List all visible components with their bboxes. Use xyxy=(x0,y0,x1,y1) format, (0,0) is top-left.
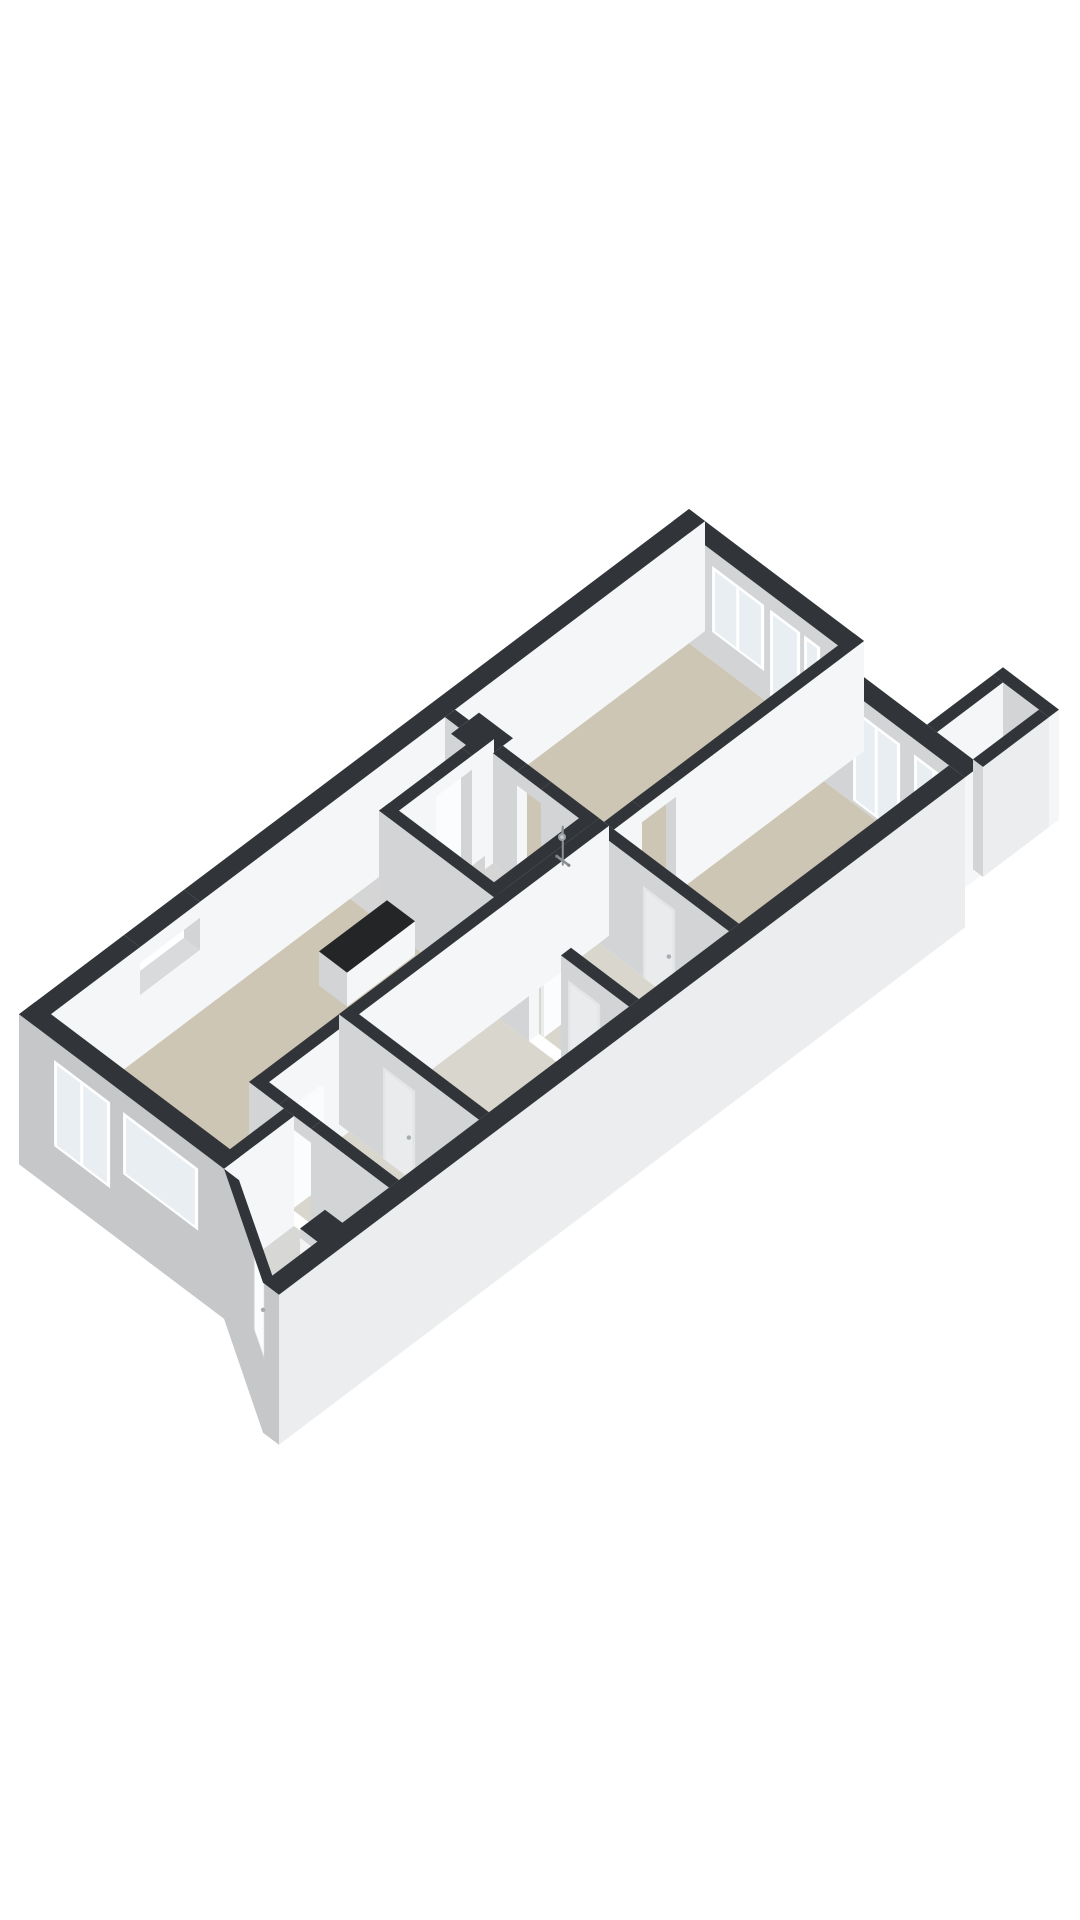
shower-knob-icon xyxy=(567,864,570,867)
door-handle-icon xyxy=(667,954,671,958)
window-mullion xyxy=(80,1083,83,1165)
floorplan-3d-svg xyxy=(0,0,1080,1920)
wall-face-shaded xyxy=(973,759,983,877)
bath-wall-left-a xyxy=(462,731,494,865)
wall-face-shaded xyxy=(263,1283,279,1445)
wall-face-bright xyxy=(472,739,494,866)
wall-face-shaded xyxy=(493,753,517,881)
shower-head-face-icon xyxy=(560,835,564,839)
window-mullion xyxy=(875,728,878,816)
shower-knob-icon xyxy=(555,855,558,858)
door-handle-icon xyxy=(261,1308,265,1312)
window-mullion xyxy=(736,588,739,650)
wall-living-b xyxy=(493,746,527,882)
door-handle-icon xyxy=(407,1135,411,1139)
floorplan-page xyxy=(0,0,1080,1920)
wall-face-bright xyxy=(1049,710,1059,828)
